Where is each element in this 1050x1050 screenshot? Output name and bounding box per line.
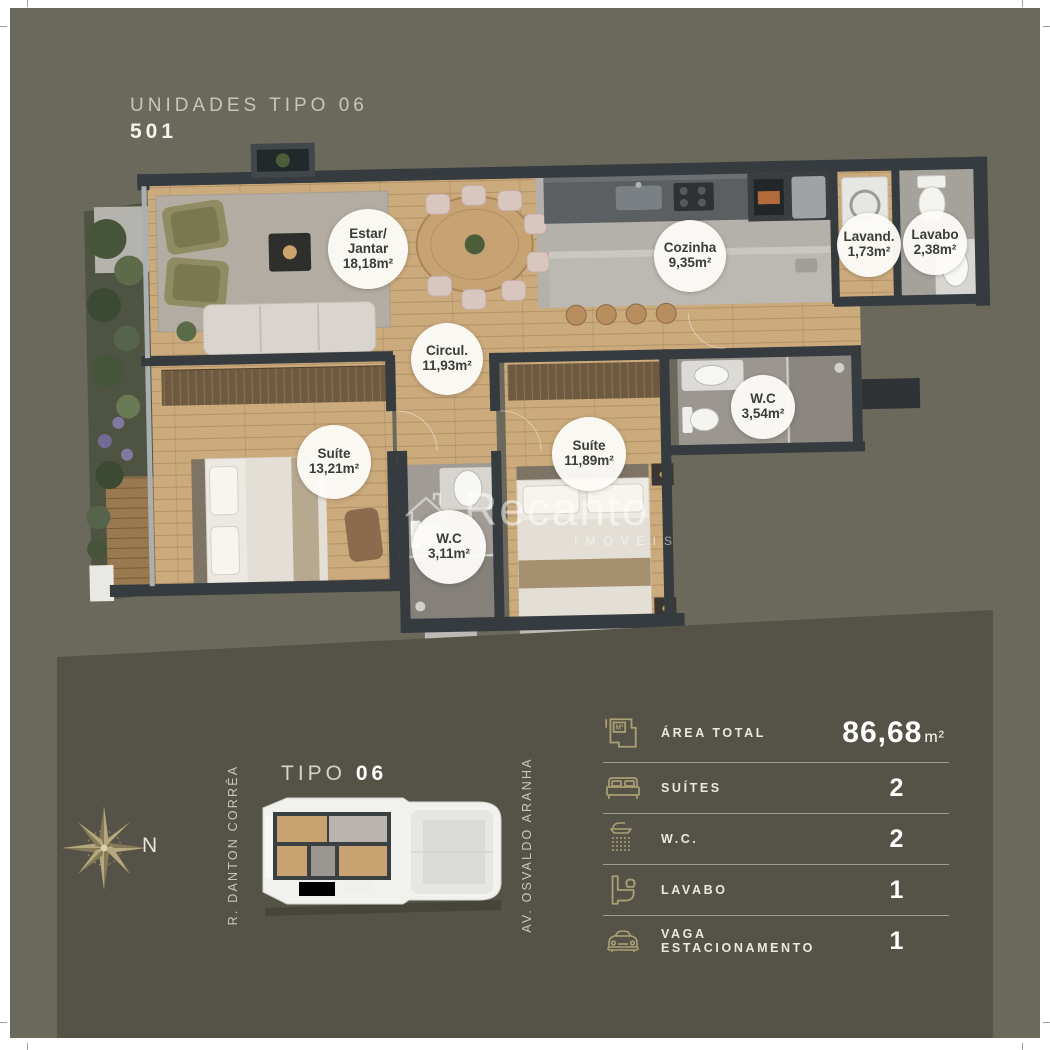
spec-row-area-total: M² ÁREA TOTAL 86,68 m² [603,704,949,762]
street-label-osvaldo-aranha: AV. OSVALDO ARANHA [520,735,534,955]
room-label: Suíte [572,438,605,453]
spec-value: 86,68 m² [841,716,949,750]
spec-label: SUÍTES [661,781,845,795]
spec-value-unit: m² [924,729,945,747]
car-icon [603,926,643,956]
room-badge-suite-1189: Suíte 11,89m² [552,417,626,491]
room-label: W.C [436,531,462,546]
street-label-danton-correa: R. DANTON CORRÊA [226,735,240,955]
spec-value: 1 [845,927,949,956]
room-badge-lavabo: Lavabo 2,38m² [903,211,967,275]
room-area: 3,11m² [428,546,470,562]
watermark-brand: Recanto [464,486,680,532]
suite1-closet [161,365,388,406]
room-area: 11,93m² [422,358,472,374]
room-label: Lavabo [911,227,958,242]
spec-value: 2 [845,774,949,803]
room-badge-estar-jantar: Estar/ Jantar 18,18m² [328,209,408,289]
room-area: 2,38m² [914,242,957,258]
spec-label: VAGA ESTACIONAMENTO [661,927,845,955]
room-badge-wc-354: W.C 3,54m² [731,375,795,439]
room-badge-suite-1321: Suíte 13,21m² [297,425,371,499]
room-area: 11,89m² [564,453,614,469]
room-badge-wc-311: W.C 3,11m² [412,510,486,584]
room-badge-circulacao: Circul. 11,93m² [411,323,483,395]
room-label: Circul. [426,343,468,358]
room-label: Cozinha [664,240,717,255]
room-area: 18,18m² [343,256,393,272]
room-area: 9,35m² [669,255,712,271]
spec-value-number: 86,68 [842,716,922,750]
sink-icon [603,871,641,909]
watermark-subtitle: IMÓVEIS [574,534,680,548]
bed-icon [603,771,643,805]
plan-type-label: TIPO 06 [281,762,387,786]
spec-label: LAVABO [661,883,845,897]
suite2-closet [507,361,660,400]
shower-icon [603,820,639,858]
plan-type-prefix: TIPO [281,762,346,785]
spec-label: ÁREA TOTAL [661,726,841,740]
spec-value: 1 [845,876,949,905]
spec-row-parking: VAGA ESTACIONAMENTO 1 [603,915,949,966]
room-label: W.C [750,391,776,406]
spec-row-wc: W.C. 2 [603,813,949,864]
spec-table: M² ÁREA TOTAL 86,68 m² [603,704,949,966]
north-label: N [142,834,159,858]
info-panel: N R. DANTON CORRÊA AV. OSVALDO ARANHA TI… [57,610,993,1038]
building-footprint-map [253,786,509,926]
room-area: 3,54m² [742,406,785,422]
room-badge-lavanderia: Lavand. 1,73m² [837,213,901,277]
spec-row-suites: SUÍTES 2 [603,762,949,813]
spec-label: W.C. [661,832,845,846]
svg-text:M²: M² [615,725,624,732]
spec-value: 2 [845,825,949,854]
room-area: 13,21m² [309,461,359,477]
room-badge-cozinha: Cozinha 9,35m² [654,220,726,292]
spec-row-lavabo: LAVABO 1 [603,864,949,915]
area-total-icon: M² [603,714,641,752]
floorplan-sheet: UNIDADES TIPO 06 501 [0,0,1050,1050]
plan-type-number: 06 [356,762,387,785]
room-label: Estar/ Jantar [348,226,389,256]
room-label: Suíte [317,446,350,461]
room-label: Lavand. [843,229,894,244]
room-area: 1,73m² [848,244,891,260]
